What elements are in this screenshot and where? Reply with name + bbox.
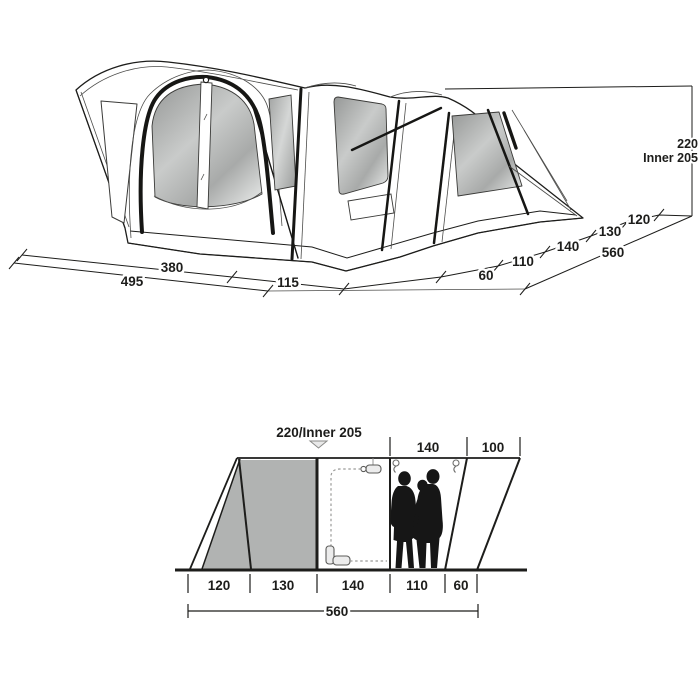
dim-label-inner-height: Inner 205: [643, 151, 698, 165]
power-cable: [331, 469, 361, 546]
person-head: [398, 471, 411, 485]
power-socket-icon: [333, 556, 350, 565]
section-floor-label-120: 120: [208, 578, 231, 593]
section-floor-label-60: 60: [453, 578, 468, 593]
hook-icon: [393, 460, 399, 466]
section-floor-label-140: 140: [342, 578, 365, 593]
dim-label-side-total: 560: [602, 245, 625, 260]
lamp-loop: [361, 466, 366, 471]
section-top-label-140: 140: [417, 440, 440, 455]
section-total-label: 560: [326, 604, 349, 619]
diagram-canvas: 380 495 115 60 110 140 130 120 560 220 I…: [0, 0, 700, 700]
dim-label-side-130: 130: [599, 224, 622, 239]
dim-label-side-60: 60: [478, 268, 493, 283]
section-floor-ticks: [188, 574, 477, 593]
lamp-assembly: [326, 458, 387, 565]
dim-label-height: 220: [677, 137, 698, 151]
top-perspective-view: 380 495 115 60 110 140 130 120 560 220 I…: [9, 61, 698, 297]
person-head: [427, 469, 440, 484]
dim-label-front-main: 380: [161, 260, 184, 275]
down-arrow-icon: [310, 441, 327, 448]
hook-icon-curve: [394, 466, 396, 473]
section-top-label-100: 100: [482, 440, 505, 455]
door-apex-ring: [203, 77, 208, 82]
right-outer-slope: [477, 458, 520, 570]
dim-label-side-110: 110: [512, 254, 534, 269]
hook-icon: [453, 460, 459, 466]
dim-label-front-porch: 115: [277, 275, 299, 290]
right-inner-slope: [445, 458, 467, 570]
family-silhouette-icon: [390, 469, 442, 568]
section-floor-label-130: 130: [272, 578, 295, 593]
dim-label-front-total: 495: [121, 274, 144, 289]
dim-label-side-140: 140: [557, 239, 580, 254]
inner-cabin-fill: [202, 460, 316, 569]
lamp-icon: [366, 465, 381, 473]
person-with-child-body: [413, 484, 443, 568]
cross-section-view: 220/Inner 205 140 100 120 130 140 110 60: [175, 425, 527, 619]
tent-dimension-diagram: 380 495 115 60 110 140 130 120 560 220 I…: [0, 0, 700, 700]
section-peak-label: 220/Inner 205: [276, 425, 362, 440]
section-floor-label-110: 110: [406, 578, 428, 593]
window-rear: [452, 112, 522, 196]
hanging-hooks: [393, 460, 459, 473]
hook-icon-curve: [454, 466, 456, 473]
dim-label-side-120: 120: [628, 212, 651, 227]
